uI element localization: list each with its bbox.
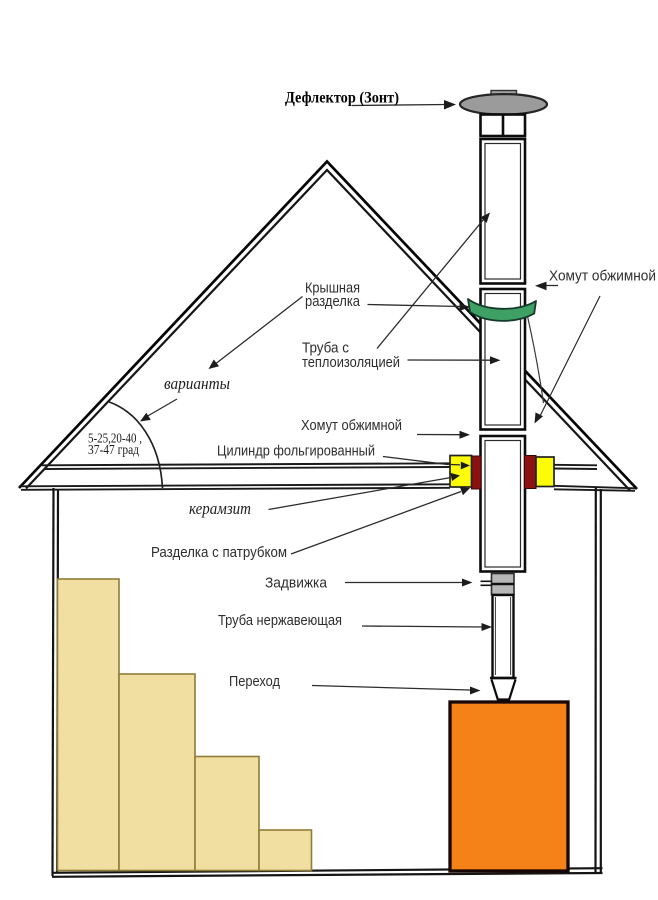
svg-text:Переход: Переход (229, 674, 280, 690)
svg-text:Хомут обжимной: Хомут обжимной (549, 269, 656, 285)
svg-text:Разделка с патрубком: Разделка с патрубком (151, 545, 287, 561)
svg-text:Труба нержавеющая: Труба нержавеющая (218, 613, 342, 629)
svg-text:Задвижка: Задвижка (265, 576, 328, 592)
svg-text:Дефлектор (Зонт): Дефлектор (Зонт) (285, 90, 399, 107)
svg-text:разделка: разделка (305, 294, 361, 310)
svg-text:Цилиндр фольгированный: Цилиндр фольгированный (217, 444, 375, 460)
svg-text:Хомут обжимной: Хомут обжимной (301, 418, 402, 434)
svg-text:37-47 град: 37-47 град (88, 442, 139, 457)
svg-text:варианты: варианты (164, 374, 230, 393)
svg-text:теплоизоляцией: теплоизоляцией (302, 355, 400, 371)
svg-text:керамзит: керамзит (189, 499, 251, 518)
